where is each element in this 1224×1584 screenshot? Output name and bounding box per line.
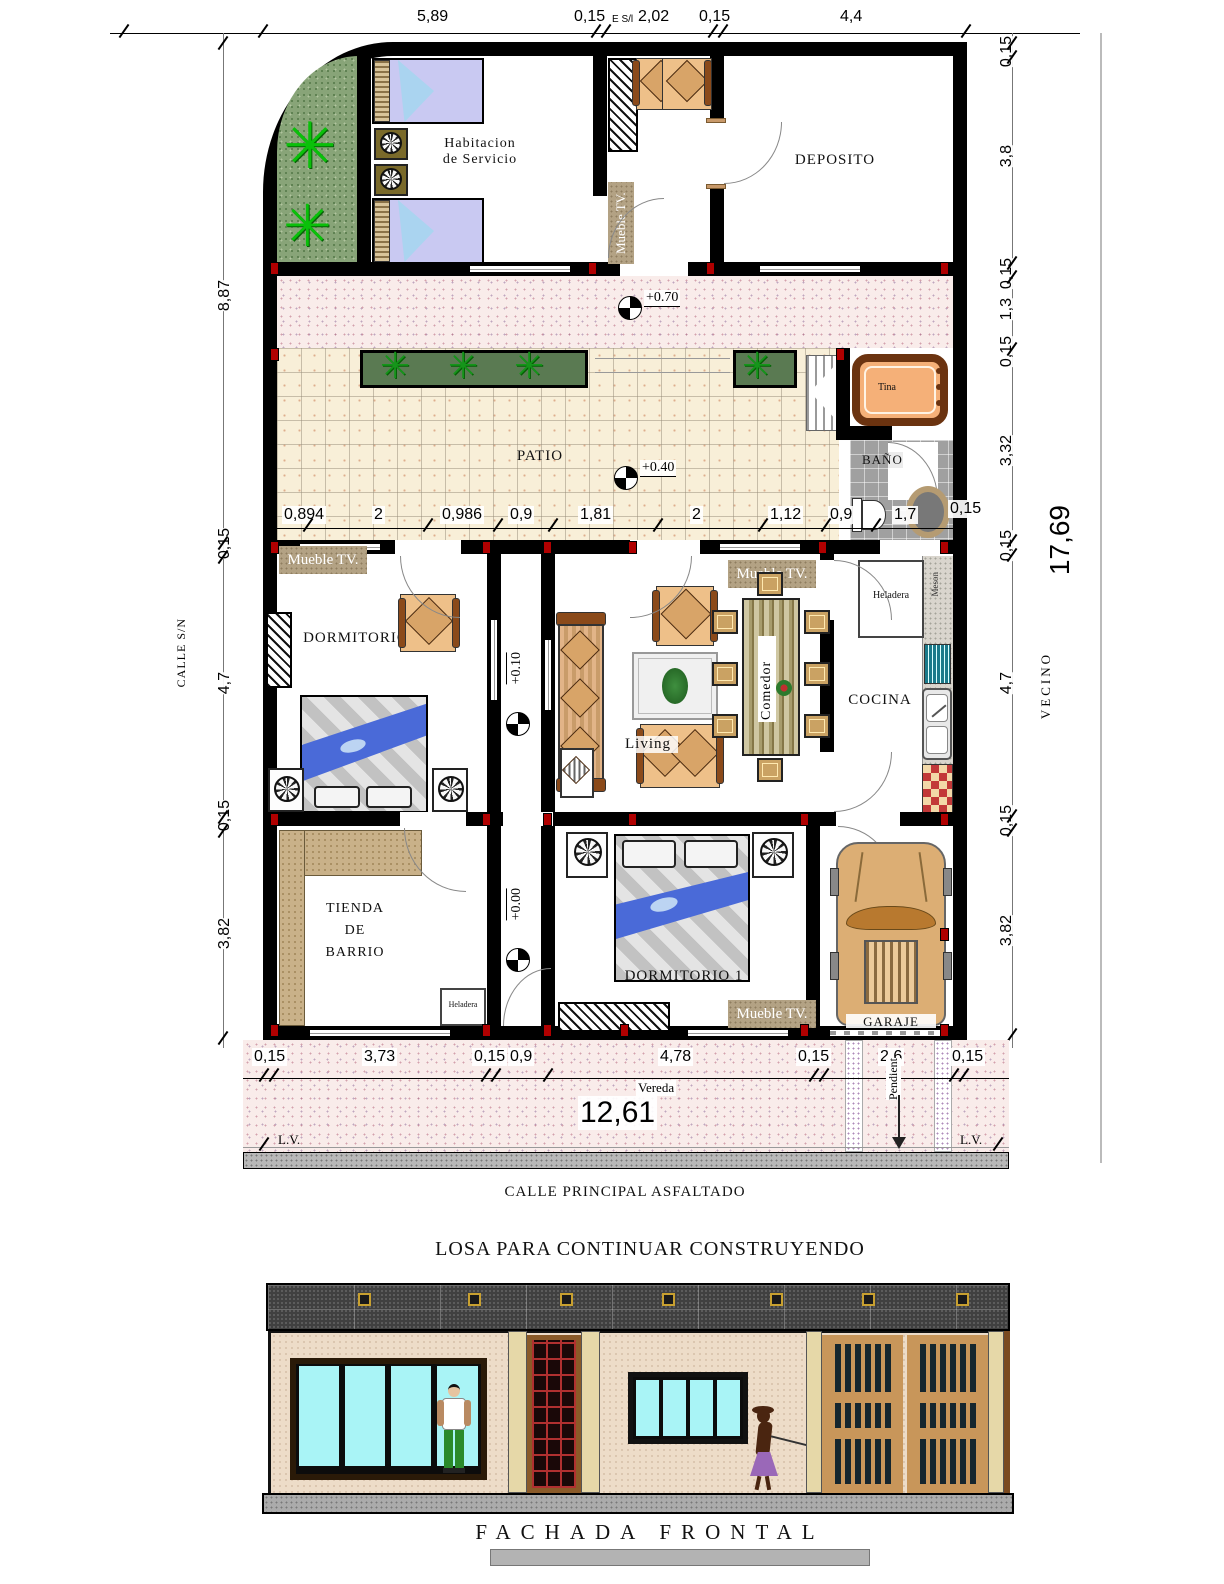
column-marker bbox=[270, 262, 279, 275]
window-tienda bbox=[310, 1028, 450, 1038]
car-wheel bbox=[830, 952, 839, 980]
man-figure-torso bbox=[442, 1398, 466, 1430]
dimension-tick bbox=[718, 24, 729, 38]
elevation-mark: +0.40 bbox=[640, 460, 676, 477]
room-label-tienda: TIENDA DE BARRIO bbox=[300, 898, 410, 964]
shoe-rack bbox=[558, 1002, 670, 1032]
roof-bracket-icon bbox=[770, 1293, 783, 1306]
dining-chair bbox=[712, 610, 738, 634]
door-gap bbox=[710, 120, 724, 186]
elevation-mark: +0.10 bbox=[506, 652, 527, 684]
armchair-arm bbox=[704, 60, 712, 106]
bathtub-inner bbox=[864, 366, 936, 414]
dining-chair bbox=[757, 572, 783, 596]
room-label-line: de Servicio bbox=[420, 152, 540, 168]
dim-left: 3,82 bbox=[214, 918, 236, 949]
dimension-tick bbox=[961, 24, 972, 38]
column-marker bbox=[628, 813, 637, 826]
woman-figure-head bbox=[757, 1409, 770, 1423]
garage-gate bbox=[830, 1028, 948, 1038]
benchmark-icon bbox=[506, 948, 530, 972]
door-gap bbox=[395, 540, 461, 554]
storefront-pane bbox=[299, 1366, 339, 1466]
dim-right-total: 17,69 bbox=[1042, 505, 1078, 575]
walkway-floor bbox=[277, 276, 953, 348]
lv-label-left: L.V. bbox=[276, 1132, 302, 1148]
column-marker bbox=[940, 262, 949, 275]
man-figure-arm bbox=[464, 1400, 471, 1426]
planter-plant-icon: ✳ bbox=[514, 346, 544, 387]
room-label-cocina: COCINA bbox=[836, 692, 924, 709]
column-marker bbox=[628, 541, 637, 554]
car-roof-rack bbox=[864, 940, 918, 1004]
street-label-bottom: CALLE PRINCIPAL ASFALTADO bbox=[400, 1184, 850, 1201]
facade-sidewalk bbox=[262, 1493, 1014, 1514]
dim-top: 0,15 bbox=[572, 8, 607, 26]
elevation-mark: +0.70 bbox=[644, 290, 680, 307]
dim-bottom: 0,15 bbox=[796, 1048, 831, 1066]
garage-door-rail bbox=[830, 1392, 895, 1403]
garage-door-rail bbox=[915, 1428, 980, 1439]
facade-pillar bbox=[806, 1331, 822, 1493]
room-label-patio: PATIO bbox=[480, 448, 600, 465]
layout-guide-line bbox=[595, 372, 730, 373]
dim-patio: 0,9 bbox=[828, 506, 854, 524]
bathtub-label: Tina bbox=[878, 382, 896, 393]
bed-pillow bbox=[684, 840, 738, 868]
wall-segment bbox=[357, 56, 371, 262]
benchmark-icon bbox=[506, 712, 530, 736]
door-gap bbox=[400, 812, 466, 826]
window-pane bbox=[663, 1380, 686, 1436]
caption-underline-bar bbox=[490, 1549, 870, 1566]
armchair-arm bbox=[398, 598, 406, 648]
door-sill bbox=[706, 118, 726, 123]
roof-bracket-icon bbox=[468, 1293, 481, 1306]
dim-patio: 1,7 bbox=[892, 506, 918, 524]
lv-label-right: L.V. bbox=[958, 1132, 984, 1148]
dim-right: 0,15 bbox=[996, 336, 1018, 367]
slope-arrow-head bbox=[892, 1137, 906, 1149]
car-wheel bbox=[943, 952, 952, 980]
car-windshield bbox=[846, 906, 936, 930]
table-centerpiece bbox=[776, 680, 792, 696]
slope-arrow-line bbox=[898, 1095, 900, 1139]
facade-caption: FACHADA FRONTAL bbox=[340, 1520, 960, 1545]
roof-bracket-icon bbox=[662, 1293, 675, 1306]
room-label-line: DE bbox=[300, 920, 410, 942]
neighbor-label: VECINO bbox=[1036, 652, 1056, 719]
column-marker bbox=[270, 1024, 279, 1037]
dim-right: 3,82 bbox=[996, 915, 1018, 946]
column-marker bbox=[543, 541, 552, 554]
column-marker bbox=[940, 928, 949, 941]
facade-pillar bbox=[508, 1331, 527, 1493]
room-label-line: Habitacion bbox=[420, 136, 540, 152]
door-gap bbox=[630, 540, 700, 554]
street-label-left: CALLE S/N bbox=[172, 618, 191, 687]
dim-bottom: 0,9 bbox=[508, 1048, 534, 1066]
room-label-line: BARRIO bbox=[300, 942, 410, 964]
fan-icon bbox=[380, 132, 402, 154]
column-marker bbox=[482, 813, 491, 826]
garage-door-panel bbox=[907, 1335, 988, 1493]
tub-fixture-dot bbox=[936, 368, 942, 374]
door-gap bbox=[620, 262, 688, 276]
property-line-right bbox=[1100, 33, 1102, 1163]
fan-icon bbox=[438, 776, 464, 802]
bed-headboard bbox=[374, 60, 390, 122]
drainboard bbox=[924, 644, 951, 684]
planter-plant-icon: ✳ bbox=[380, 346, 410, 387]
sink-basin bbox=[926, 694, 948, 722]
column-marker bbox=[836, 348, 845, 361]
benchmark-icon bbox=[614, 466, 638, 490]
wall-segment bbox=[487, 826, 501, 1026]
dining-chair bbox=[712, 714, 738, 738]
bed-headboard bbox=[374, 200, 390, 262]
man-figure-arm bbox=[437, 1400, 444, 1426]
bed-pillow bbox=[622, 840, 676, 868]
fan-icon bbox=[380, 168, 402, 190]
column-marker bbox=[940, 813, 949, 826]
column-marker bbox=[270, 348, 279, 361]
elevation-mark: +0.00 bbox=[506, 888, 527, 920]
stove bbox=[922, 764, 953, 814]
fridge-label: Heladera bbox=[441, 1000, 485, 1009]
dim-bottom: 3,73 bbox=[362, 1048, 397, 1066]
facade-title: LOSA PARA CONTINUAR CONSTRUYENDO bbox=[340, 1238, 960, 1261]
window-pane bbox=[690, 1380, 713, 1436]
dim-patio: 0,894 bbox=[282, 506, 326, 524]
benchmark-icon bbox=[618, 296, 642, 320]
room-label-servicio: Habitacion de Servicio bbox=[420, 136, 540, 168]
dimension-line-patio bbox=[277, 528, 953, 529]
man-figure-legs bbox=[444, 1430, 453, 1468]
dining-chair bbox=[804, 662, 830, 686]
man-figure-feet bbox=[443, 1468, 465, 1473]
roof-bracket-icon bbox=[560, 1293, 573, 1306]
planter-plant-icon: ✳ bbox=[742, 346, 772, 387]
dim-patio: 0,9 bbox=[508, 506, 534, 524]
tub-fixture-dot bbox=[936, 384, 942, 390]
window-top-band bbox=[470, 264, 570, 274]
column-marker bbox=[543, 813, 552, 826]
storefront-pane bbox=[345, 1366, 385, 1466]
window-pane bbox=[636, 1380, 659, 1436]
room-label-living: Living bbox=[618, 736, 678, 753]
dim-right: 3,32 bbox=[996, 435, 1018, 466]
facade-edge-strip bbox=[1004, 1331, 1010, 1493]
dim-bottom: 4,78 bbox=[658, 1048, 693, 1066]
column-marker bbox=[800, 813, 809, 826]
sidewalk-label: Vereda bbox=[636, 1080, 676, 1096]
dining-chair bbox=[804, 610, 830, 634]
facade-pillar bbox=[988, 1331, 1004, 1493]
column-marker bbox=[818, 541, 827, 554]
dining-chair bbox=[757, 758, 783, 782]
room-label-dormitorio1: DORMITORIO 1 bbox=[614, 968, 754, 985]
window-pane bbox=[717, 1380, 740, 1436]
dim-patio: 1,81 bbox=[578, 506, 613, 524]
column-marker bbox=[706, 262, 715, 275]
column-marker bbox=[270, 541, 279, 554]
dim-patio: 2 bbox=[690, 506, 703, 524]
column-marker bbox=[800, 1024, 809, 1037]
car-wheel bbox=[943, 868, 952, 896]
louver-window bbox=[266, 612, 292, 688]
fan-icon bbox=[760, 838, 788, 866]
floor-plan-sheet: 5,89 0,15 E S/l 2,02 0,15 4,4 8,87 0,15 … bbox=[0, 0, 1224, 1584]
column-marker bbox=[270, 813, 279, 826]
garage-door-panel bbox=[822, 1335, 903, 1493]
window-deposito bbox=[760, 264, 860, 274]
sink-basin bbox=[926, 726, 948, 754]
column-marker bbox=[940, 541, 949, 554]
column-marker bbox=[543, 1024, 552, 1037]
dim-bottom: 0,15 bbox=[950, 1048, 985, 1066]
wall-segment bbox=[836, 426, 892, 440]
dimension-tick bbox=[258, 24, 269, 38]
armchair-arm bbox=[632, 60, 640, 106]
dim-right: 1,3 bbox=[996, 298, 1018, 320]
rug-plant bbox=[662, 668, 688, 704]
bed-pillow bbox=[366, 786, 412, 808]
front-door bbox=[527, 1335, 581, 1493]
room-label-line: TIENDA bbox=[300, 898, 410, 920]
fan-icon bbox=[274, 776, 300, 802]
door-gap bbox=[880, 540, 940, 554]
dim-top-note: E S/l bbox=[610, 14, 635, 25]
dim-bottom: 0,15 bbox=[472, 1048, 507, 1066]
wall-segment bbox=[806, 826, 820, 1026]
dim-patio: 1,12 bbox=[768, 506, 803, 524]
door-gap bbox=[836, 812, 900, 826]
garage-door-rail bbox=[915, 1392, 980, 1403]
column-marker bbox=[940, 1024, 949, 1037]
wall-opening bbox=[489, 620, 499, 700]
driveway-strip bbox=[845, 1040, 863, 1152]
tub-fixture-dot bbox=[936, 400, 942, 406]
dim-bottom: 0,15 bbox=[252, 1048, 287, 1066]
window-dorm1 bbox=[688, 1028, 788, 1038]
palm-tree-icon: ✳ bbox=[283, 192, 332, 260]
car-wheel bbox=[830, 868, 839, 896]
counter-label: Meson bbox=[930, 572, 940, 597]
dimension-tick bbox=[119, 24, 130, 38]
tv-cabinet-label: Mueble TV. bbox=[279, 546, 367, 574]
dimension-tick bbox=[601, 24, 612, 38]
roof-bracket-icon bbox=[956, 1293, 969, 1306]
dim-left: 8,87 bbox=[214, 280, 236, 311]
comedor-label: Comedor bbox=[758, 636, 776, 722]
room-label-bano: BAÑO bbox=[862, 452, 903, 468]
dim-patio: 2 bbox=[372, 506, 385, 524]
dim-top: 2,02 bbox=[636, 8, 671, 26]
storefront-pane bbox=[391, 1366, 431, 1466]
column-marker bbox=[482, 1024, 491, 1037]
wall-segment bbox=[593, 56, 607, 196]
slope-label: Pendient bbox=[886, 1058, 901, 1100]
palm-tree-icon: ✳ bbox=[283, 110, 337, 184]
room-label-deposito: DEPOSITO bbox=[780, 152, 890, 169]
dining-chair bbox=[712, 662, 738, 686]
planter-plant-icon: ✳ bbox=[448, 346, 478, 387]
garage-door-rail bbox=[830, 1428, 895, 1439]
man-figure-legs bbox=[455, 1430, 464, 1468]
layout-guide-line bbox=[595, 358, 730, 359]
roof-bracket-icon bbox=[358, 1293, 371, 1306]
wall-opening bbox=[543, 640, 553, 710]
dim-left: 4,7 bbox=[214, 672, 236, 694]
dim-patio: 0,986 bbox=[440, 506, 484, 524]
fan-icon bbox=[574, 838, 602, 866]
dim-bottom-total: 12,61 bbox=[578, 1096, 657, 1130]
dim-top: 4,4 bbox=[838, 8, 864, 26]
man-figure-head bbox=[448, 1384, 460, 1397]
door-gap bbox=[820, 752, 834, 812]
dim-patio: 0,15 bbox=[948, 500, 983, 518]
dining-chair bbox=[804, 714, 830, 738]
dim-top: 5,89 bbox=[415, 8, 450, 26]
roof-bracket-icon bbox=[862, 1293, 875, 1306]
window-comedor bbox=[720, 542, 800, 552]
dim-right: 3,8 bbox=[996, 145, 1018, 167]
column-marker bbox=[588, 262, 597, 275]
facade-roof-band bbox=[266, 1283, 1010, 1331]
door-sill bbox=[706, 184, 726, 189]
dim-right: 4,7 bbox=[996, 672, 1018, 694]
street-curb bbox=[243, 1152, 1009, 1169]
bed-pillow bbox=[314, 786, 360, 808]
column-marker bbox=[482, 541, 491, 554]
facade-pillar bbox=[581, 1331, 600, 1493]
column-marker bbox=[620, 1024, 629, 1037]
